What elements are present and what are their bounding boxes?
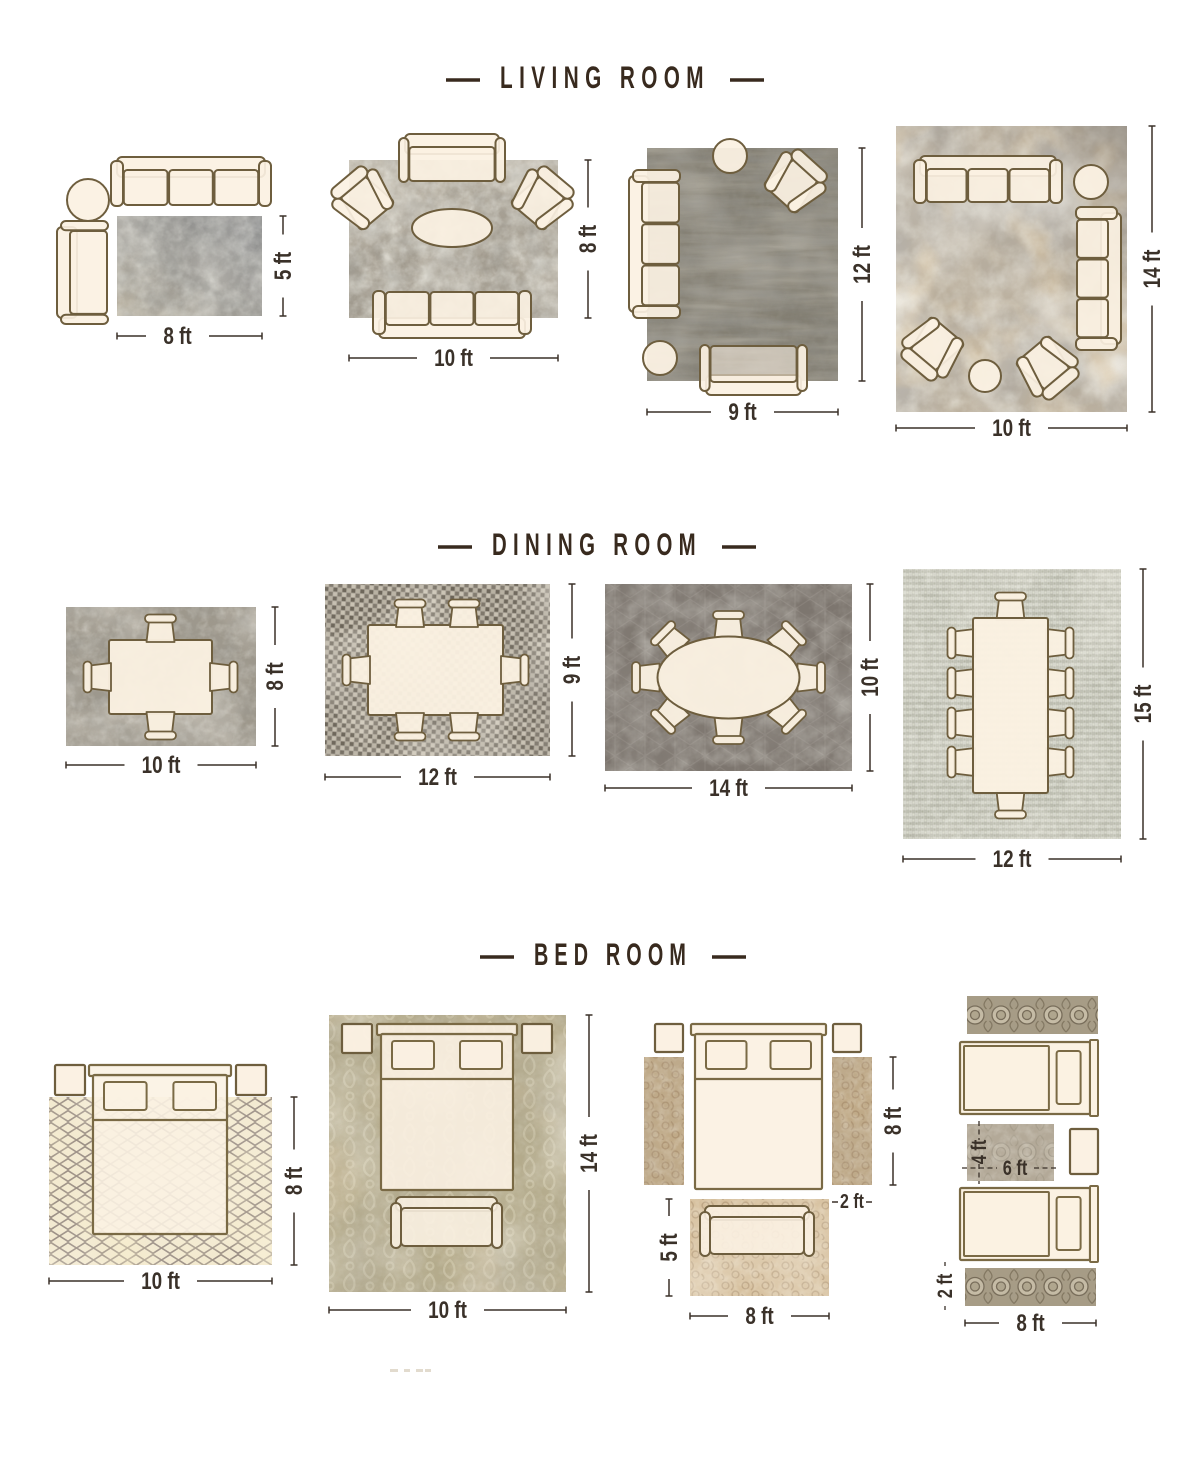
svg-text:8 ft: 8 ft xyxy=(163,322,191,350)
svg-text:8 ft: 8 ft xyxy=(879,1107,907,1135)
svg-text:10 ft: 10 ft xyxy=(142,751,181,779)
svg-text:DINING ROOM: DINING ROOM xyxy=(492,527,702,563)
svg-text:14 ft: 14 ft xyxy=(575,1134,603,1173)
svg-text:12 ft: 12 ft xyxy=(418,763,457,791)
svg-text:15 ft: 15 ft xyxy=(1129,685,1157,724)
svg-text:8 ft: 8 ft xyxy=(280,1167,308,1195)
svg-text:10 ft: 10 ft xyxy=(856,658,884,697)
svg-text:LIVING ROOM: LIVING ROOM xyxy=(500,60,710,96)
svg-text:12 ft: 12 ft xyxy=(848,245,876,284)
svg-text:14 ft: 14 ft xyxy=(709,774,748,802)
svg-text:8 ft: 8 ft xyxy=(745,1302,773,1330)
svg-text:9 ft: 9 ft xyxy=(558,656,586,684)
svg-text:8 ft: 8 ft xyxy=(261,662,289,690)
svg-text:10 ft: 10 ft xyxy=(141,1267,180,1295)
svg-text:8 ft: 8 ft xyxy=(1016,1309,1044,1337)
svg-text:5 ft: 5 ft xyxy=(655,1233,683,1261)
svg-text:10 ft: 10 ft xyxy=(428,1296,467,1324)
svg-text:8 ft: 8 ft xyxy=(574,225,602,253)
svg-text:2 ft: 2 ft xyxy=(840,1189,864,1212)
svg-text:9 ft: 9 ft xyxy=(728,398,756,426)
svg-text:14 ft: 14 ft xyxy=(1138,250,1166,289)
svg-text:10 ft: 10 ft xyxy=(434,344,473,372)
svg-text:5 ft: 5 ft xyxy=(269,252,297,280)
svg-text:6 ft: 6 ft xyxy=(1003,1156,1028,1179)
svg-text:10 ft: 10 ft xyxy=(992,414,1031,442)
svg-text:BED ROOM: BED ROOM xyxy=(534,937,692,973)
svg-text:12 ft: 12 ft xyxy=(993,845,1032,873)
svg-text:2 ft: 2 ft xyxy=(933,1273,956,1298)
svg-text:4 ft: 4 ft xyxy=(967,1139,990,1164)
